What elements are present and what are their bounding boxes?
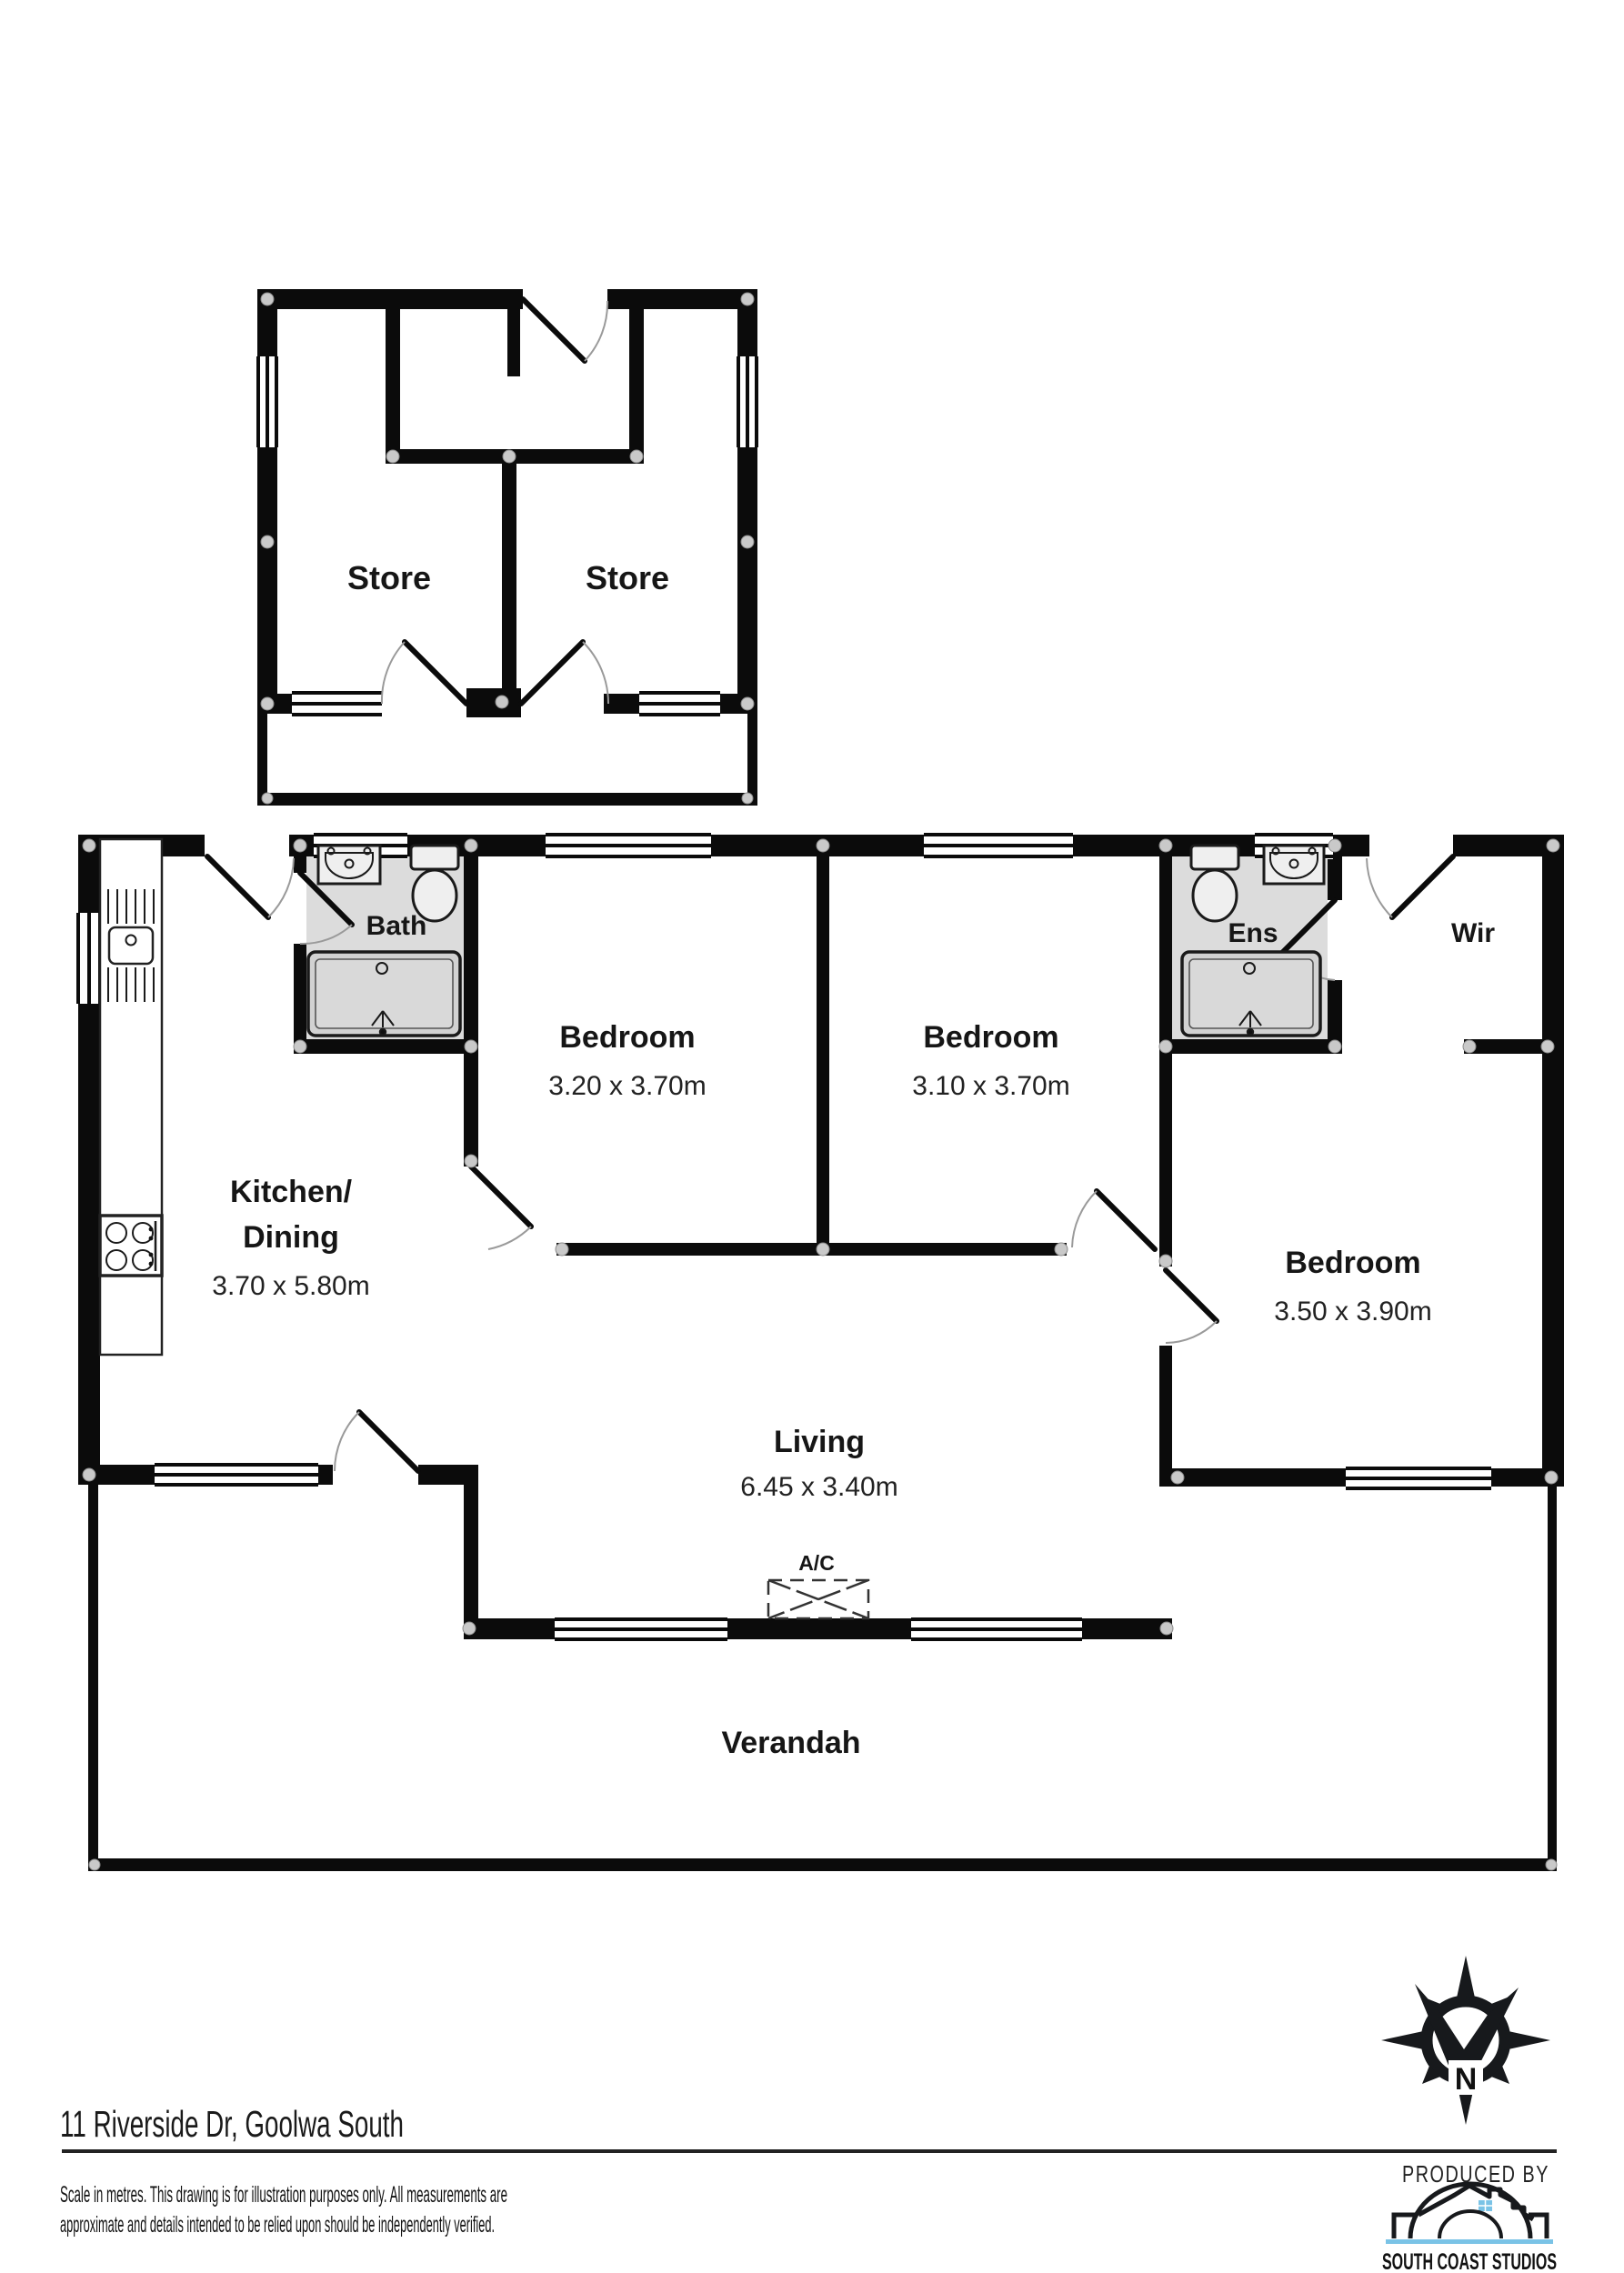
ac-label: A/C bbox=[798, 1551, 835, 1575]
ens-shower bbox=[1182, 952, 1320, 1036]
compass-north-icon: N bbox=[1381, 1956, 1550, 2125]
room-dims-bedroom3: 3.50 x 3.90m bbox=[1274, 1297, 1431, 1327]
disclaimer-line1: Scale in metres. This drawing is for ill… bbox=[60, 2182, 507, 2208]
room-label-bedroom1: Bedroom bbox=[559, 1020, 695, 1055]
bedroom2-door bbox=[1072, 1191, 1155, 1249]
room-dims-bedroom2: 3.10 x 3.70m bbox=[912, 1071, 1069, 1101]
bedroom2-window bbox=[924, 832, 1073, 859]
bedroom3-door bbox=[1166, 1270, 1217, 1343]
wir-door bbox=[1367, 856, 1453, 917]
store-left-door bbox=[382, 642, 466, 704]
store-right-door bbox=[521, 642, 608, 704]
room-label-store-right: Store bbox=[586, 559, 669, 596]
bedroom3-window bbox=[1346, 1466, 1491, 1490]
store-window-right-wall bbox=[734, 356, 761, 447]
room-dims-living: 6.45 x 3.40m bbox=[740, 1472, 897, 1502]
store-entry-door bbox=[523, 299, 607, 361]
store-walls bbox=[257, 289, 757, 717]
room-label-store-left: Store bbox=[347, 559, 431, 596]
verandah-outline bbox=[88, 1485, 1557, 1871]
store-porch bbox=[257, 714, 757, 806]
main-house: Bath Ens Wir Bedroom 3.20 x 3.70m Bedroo… bbox=[75, 832, 1564, 1871]
logo-accent-line bbox=[1386, 2239, 1553, 2244]
store-building: Store Store bbox=[254, 289, 761, 806]
kitchen-rear-window bbox=[155, 1461, 318, 1487]
room-dims-kitchen: 3.70 x 5.80m bbox=[212, 1271, 369, 1301]
studio-name: SOUTH COAST STUDIOS bbox=[1382, 2249, 1557, 2273]
ens-basin bbox=[1264, 846, 1324, 884]
studio-logo: SOUTH COAST STUDIOS bbox=[1382, 2184, 1557, 2273]
room-label-living: Living bbox=[774, 1425, 865, 1459]
footer: 11 Riverside Dr, Goolwa South Scale in m… bbox=[60, 2103, 1557, 2273]
compass-north-label: N bbox=[1455, 2062, 1478, 2097]
floor-plan-canvas: Store Store bbox=[0, 0, 1624, 2273]
bedroom1-window bbox=[546, 832, 711, 859]
kitchen-side-window bbox=[75, 913, 103, 1004]
kitchen-rear-door bbox=[335, 1412, 418, 1471]
front-door bbox=[207, 856, 294, 917]
room-dims-bedroom1: 3.20 x 3.70m bbox=[548, 1071, 706, 1101]
living-window-left bbox=[555, 1616, 727, 1642]
kitchen-sink bbox=[109, 927, 153, 964]
bath-basin bbox=[318, 846, 380, 884]
living-window-right bbox=[911, 1616, 1082, 1642]
room-label-kitchen-line1: Kitchen/ bbox=[230, 1175, 353, 1209]
address-title: 11 Riverside Dr, Goolwa South bbox=[60, 2103, 404, 2145]
store-window-bottom-right bbox=[639, 690, 720, 717]
room-label-bedroom2: Bedroom bbox=[923, 1020, 1058, 1055]
room-label-ens: Ens bbox=[1228, 918, 1278, 948]
disclaimer-line2: approximate and details intended to be r… bbox=[60, 2212, 495, 2238]
room-label-bath: Bath bbox=[366, 911, 427, 941]
store-doors bbox=[382, 299, 608, 704]
ens-toilet bbox=[1191, 846, 1238, 921]
kitchen-bench bbox=[100, 839, 162, 1355]
bedroom1-door bbox=[471, 1167, 531, 1249]
bath-toilet bbox=[411, 846, 458, 921]
floor-plan-page: Store Store bbox=[0, 0, 1624, 2273]
room-label-bedroom3: Bedroom bbox=[1285, 1246, 1420, 1280]
bath-tub bbox=[308, 952, 460, 1036]
logo-window-icon bbox=[1479, 2200, 1492, 2211]
room-label-verandah: Verandah bbox=[721, 1726, 860, 1760]
room-label-kitchen-line2: Dining bbox=[243, 1220, 339, 1255]
store-window-left-wall bbox=[254, 356, 281, 447]
footer-divider bbox=[62, 2149, 1557, 2153]
room-label-wir: Wir bbox=[1451, 918, 1495, 948]
ac-unit bbox=[768, 1580, 868, 1618]
store-window-bottom-left bbox=[292, 690, 382, 717]
kitchen-stove bbox=[100, 1216, 162, 1276]
